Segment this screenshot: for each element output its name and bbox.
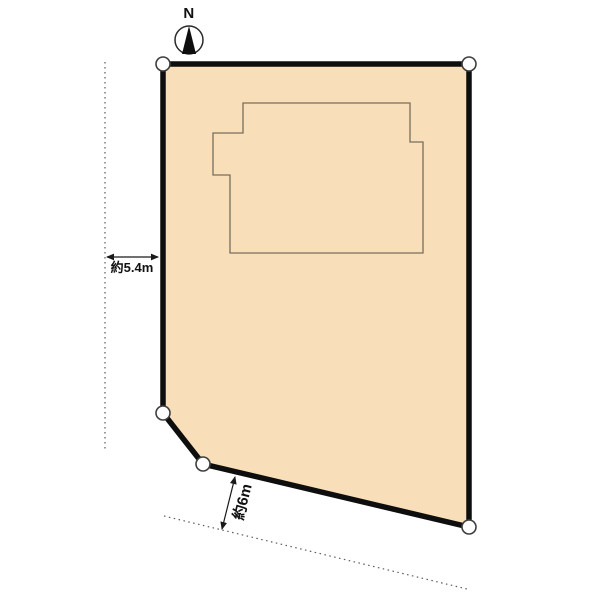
vertex-marker	[156, 57, 170, 71]
vertex-marker	[462, 57, 476, 71]
compass-north-label: N	[183, 6, 194, 21]
site-plan-svg	[0, 0, 600, 600]
compass-icon	[175, 26, 203, 54]
plot-polygon	[163, 64, 469, 527]
vertex-marker	[462, 520, 476, 534]
road-dotted-line	[164, 516, 467, 589]
vertex-marker	[196, 457, 210, 471]
left-dimension-label: 約5.4m	[111, 261, 154, 274]
vertex-marker	[156, 406, 170, 420]
site-plan-canvas: N 約5.4m 約6m	[0, 0, 600, 600]
